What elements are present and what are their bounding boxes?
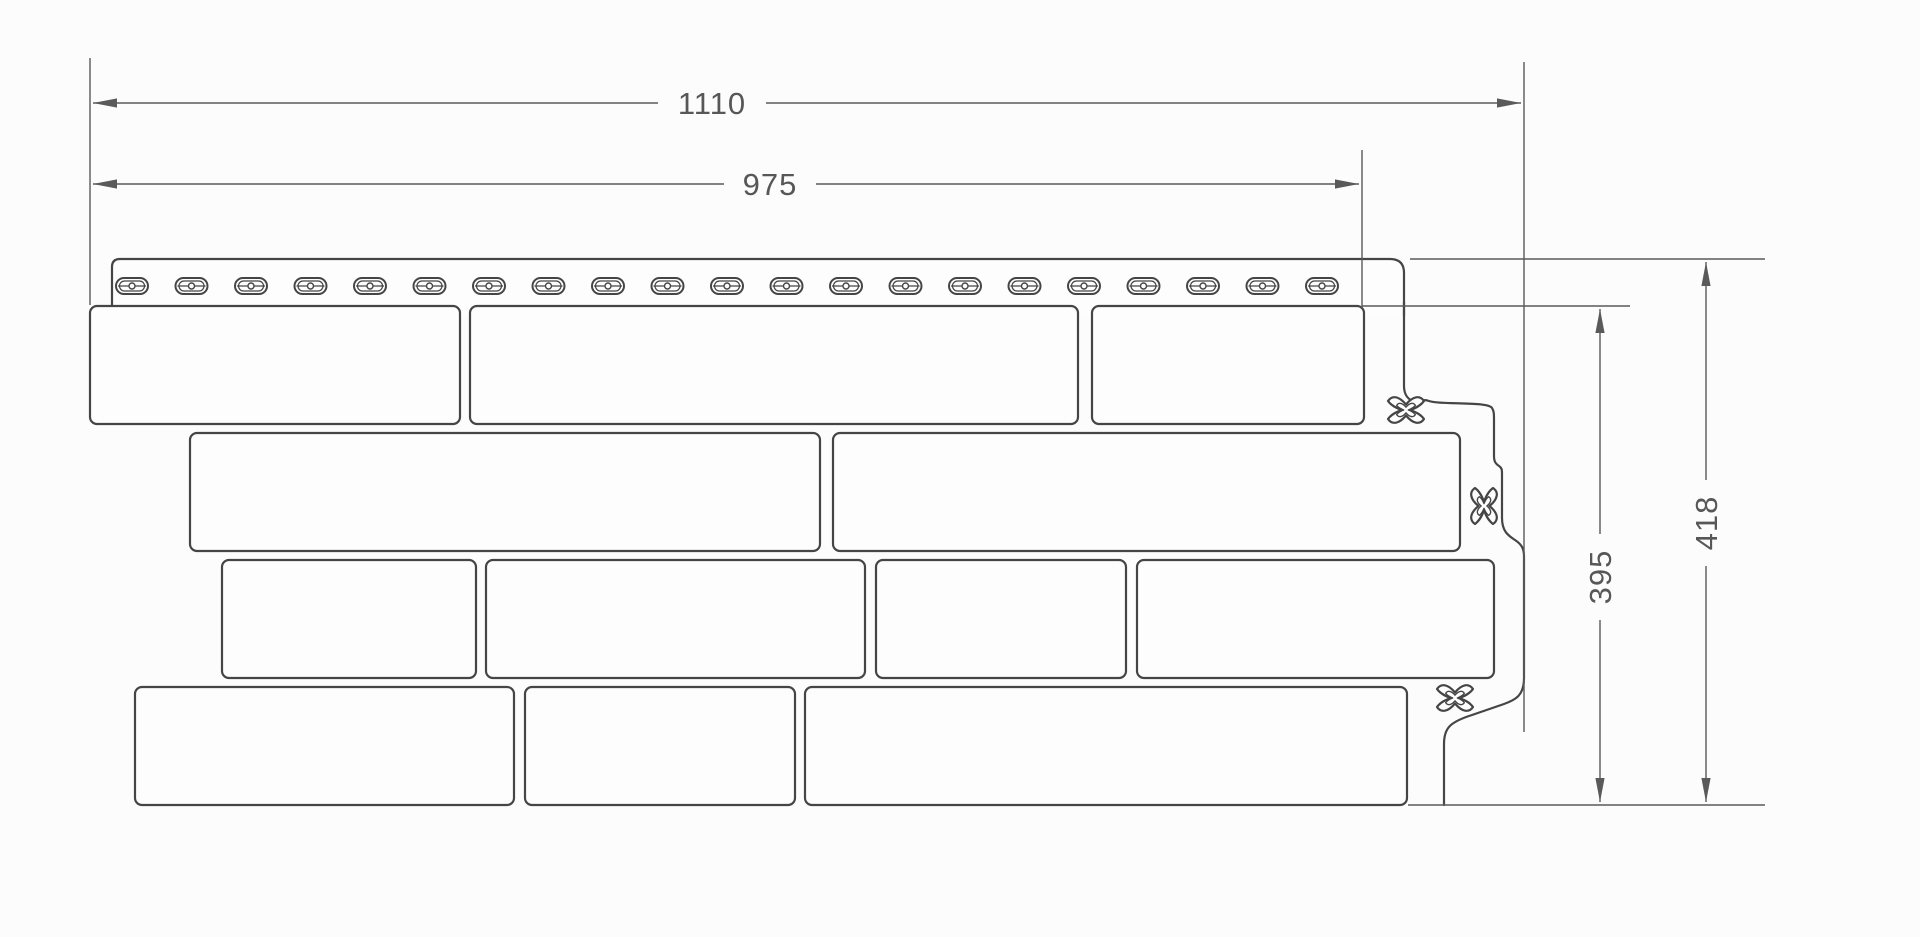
x-fastener-mark-icon <box>1471 488 1497 524</box>
x-mark-outer <box>1471 488 1497 524</box>
nail-slot-icon <box>1247 278 1279 294</box>
nail-slot-center <box>308 283 314 289</box>
nail-slot-center <box>903 283 909 289</box>
brick-row3 <box>486 560 865 678</box>
arrowhead-down-icon <box>1701 778 1710 802</box>
nail-slot-icon <box>1009 278 1041 294</box>
nail-slot-center <box>486 283 492 289</box>
nail-slot-center <box>427 283 433 289</box>
nail-slot-center <box>367 283 373 289</box>
arrowhead-up-icon <box>1595 309 1604 333</box>
nail-slot-icon <box>592 278 624 294</box>
nail-slot-center <box>605 283 611 289</box>
brick-row2 <box>833 433 1460 551</box>
dimension-nominal-height: 395 <box>1583 309 1618 802</box>
brick-row4 <box>525 687 795 805</box>
nail-slot-icon <box>176 278 208 294</box>
x-mark-outer <box>1388 397 1424 423</box>
nail-slot-icon <box>830 278 862 294</box>
brick-row2 <box>190 433 820 551</box>
drawing-canvas: 1110 975 395 418 <box>0 0 1920 937</box>
nail-slot-icon <box>473 278 505 294</box>
dimension-nominal-width: 975 <box>93 167 1359 202</box>
arrowhead-down-icon <box>1595 778 1604 802</box>
arrowhead-left-icon <box>93 179 117 188</box>
nail-slot-icon <box>771 278 803 294</box>
brick-row3 <box>876 560 1126 678</box>
nail-slot-icon <box>414 278 446 294</box>
nail-slot-center <box>724 283 730 289</box>
nail-slot-icon <box>1306 278 1338 294</box>
nail-slot-icon <box>1187 278 1219 294</box>
nail-slot-center <box>843 283 849 289</box>
nail-slot-icon <box>652 278 684 294</box>
nail-slot-center <box>1200 283 1206 289</box>
dimension-overall-height: 418 <box>1689 262 1724 802</box>
brick-row3 <box>1137 560 1494 678</box>
x-fastener-mark-icon <box>1437 685 1473 711</box>
nail-slot-icon <box>295 278 327 294</box>
dimension-label-overall-width: 1110 <box>678 86 746 121</box>
nail-slot-icon <box>890 278 922 294</box>
dimension-label-nominal-height: 395 <box>1583 550 1618 605</box>
nail-slot-center <box>1260 283 1266 289</box>
brick-row1 <box>90 306 460 424</box>
brick-row4 <box>135 687 514 805</box>
nail-slot-center <box>1319 283 1325 289</box>
nail-slot-icon <box>711 278 743 294</box>
nail-slot-center <box>962 283 968 289</box>
nail-slot-center <box>784 283 790 289</box>
arrowhead-up-icon <box>1701 262 1710 286</box>
dimension-label-overall-height: 418 <box>1689 496 1724 551</box>
nail-slot-icon <box>1068 278 1100 294</box>
facade-panel-technical-drawing: 1110 975 395 418 <box>0 0 1920 937</box>
brick-row4 <box>805 687 1407 805</box>
nail-slot-icon <box>1128 278 1160 294</box>
arrowhead-right-icon <box>1497 98 1521 107</box>
nail-slot-center <box>129 283 135 289</box>
nail-slot-icon <box>533 278 565 294</box>
nail-slot-center <box>1022 283 1028 289</box>
arrowhead-right-icon <box>1335 179 1359 188</box>
nail-slot-icon <box>116 278 148 294</box>
dimension-overall-width: 1110 <box>93 86 1521 121</box>
brick-courses <box>90 306 1494 805</box>
nail-slot-icon <box>235 278 267 294</box>
brick-row1 <box>1092 306 1364 424</box>
dimension-label-nominal-width: 975 <box>743 167 798 202</box>
nail-slot-center <box>1081 283 1087 289</box>
arrowhead-left-icon <box>93 98 117 107</box>
nail-slot-center <box>546 283 552 289</box>
x-fastener-mark-icon <box>1388 397 1424 423</box>
nail-slot-center <box>248 283 254 289</box>
nail-slot-icon <box>949 278 981 294</box>
nail-slot-center <box>189 283 195 289</box>
right-edge-profile <box>1404 302 1524 805</box>
nail-slots <box>116 278 1338 294</box>
nail-slot-center <box>1141 283 1147 289</box>
x-mark-outer <box>1437 685 1473 711</box>
brick-row3 <box>222 560 476 678</box>
brick-row1 <box>470 306 1078 424</box>
nail-slot-icon <box>354 278 386 294</box>
nail-slot-center <box>665 283 671 289</box>
